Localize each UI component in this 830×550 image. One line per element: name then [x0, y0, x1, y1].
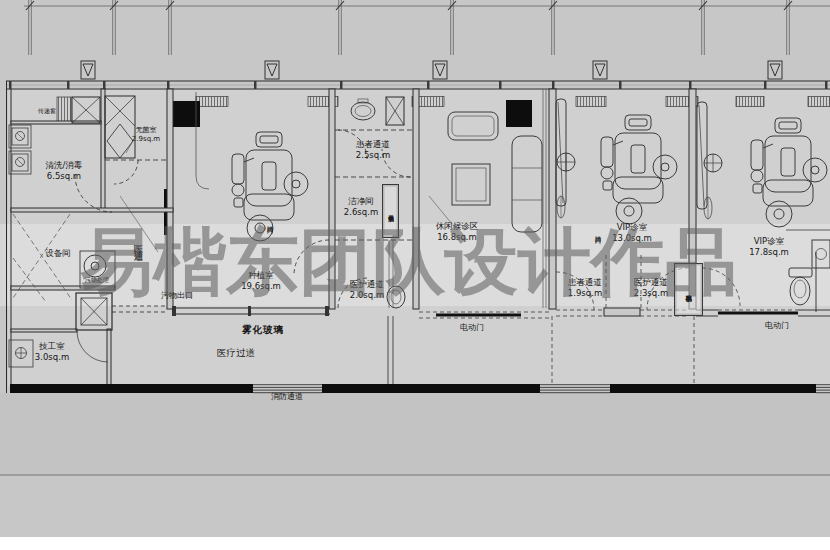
vanity — [812, 240, 830, 268]
label-pass-window: 传递窗 — [38, 107, 56, 115]
label-electric-door-2: 电动门 — [765, 321, 789, 331]
window-tags — [81, 61, 782, 79]
dental-chair-vip13 — [601, 115, 677, 224]
room-label-clean-room: 洁净间 2.6sq.m — [344, 196, 378, 217]
room-name: 设备间 — [45, 248, 71, 259]
room-label-patient-top: 患者通道 2.5sq.m — [356, 139, 390, 160]
dental-chair-vip17 — [751, 118, 827, 227]
room-area: 2.5sq.m — [356, 150, 390, 161]
room-area: 2.9sq.m — [132, 135, 160, 144]
room-area: 6.5sq.m — [46, 171, 83, 182]
watermark: 易楷东团队设计作品 — [80, 224, 737, 301]
room-label-sterile: 无菌室 2.9sq.m — [132, 126, 160, 144]
floorplan-canvas: 传递窗 清洗/消毒 6.5sq.m 无菌室 2.9sq.m 设备间 污物处理 技… — [0, 0, 830, 550]
room-label-cleaning: 清洗/消毒 6.5sq.m — [46, 160, 83, 181]
room-name: 技工室 — [35, 341, 69, 352]
label-fog-glass: 雾化玻璃 — [242, 324, 284, 336]
room-label-equipment: 设备间 — [45, 248, 71, 259]
room-area: 2.6sq.m — [344, 207, 378, 218]
room-area: 3.0sq.m — [35, 352, 69, 363]
label-fire-passage: 消防通道 — [271, 392, 303, 402]
room-label-vip17: VIP诊室 17.8sq.m — [749, 236, 789, 257]
bottom-wall — [10, 384, 830, 393]
elevator-shaft — [105, 96, 135, 158]
toilet — [789, 268, 812, 305]
label-electric-door-1: 电动门 — [460, 323, 484, 333]
pass-window-hatch — [57, 97, 71, 123]
wall-sinks — [9, 125, 31, 174]
room-area: 17.8sq.m — [749, 247, 789, 258]
room-name: 无菌室 — [132, 126, 160, 135]
room-name: 患者通道 — [356, 139, 390, 150]
top-wall — [6, 81, 830, 89]
room-name: 清洗/消毒 — [46, 160, 83, 171]
room-name: 洁净间 — [344, 196, 378, 207]
room-label-tech: 技工室 3.0sq.m — [35, 341, 69, 362]
label-medical-aisle: 医疗过道 — [217, 347, 255, 359]
grid-ticks — [24, 0, 830, 55]
room-name: VIP诊室 — [749, 236, 789, 247]
